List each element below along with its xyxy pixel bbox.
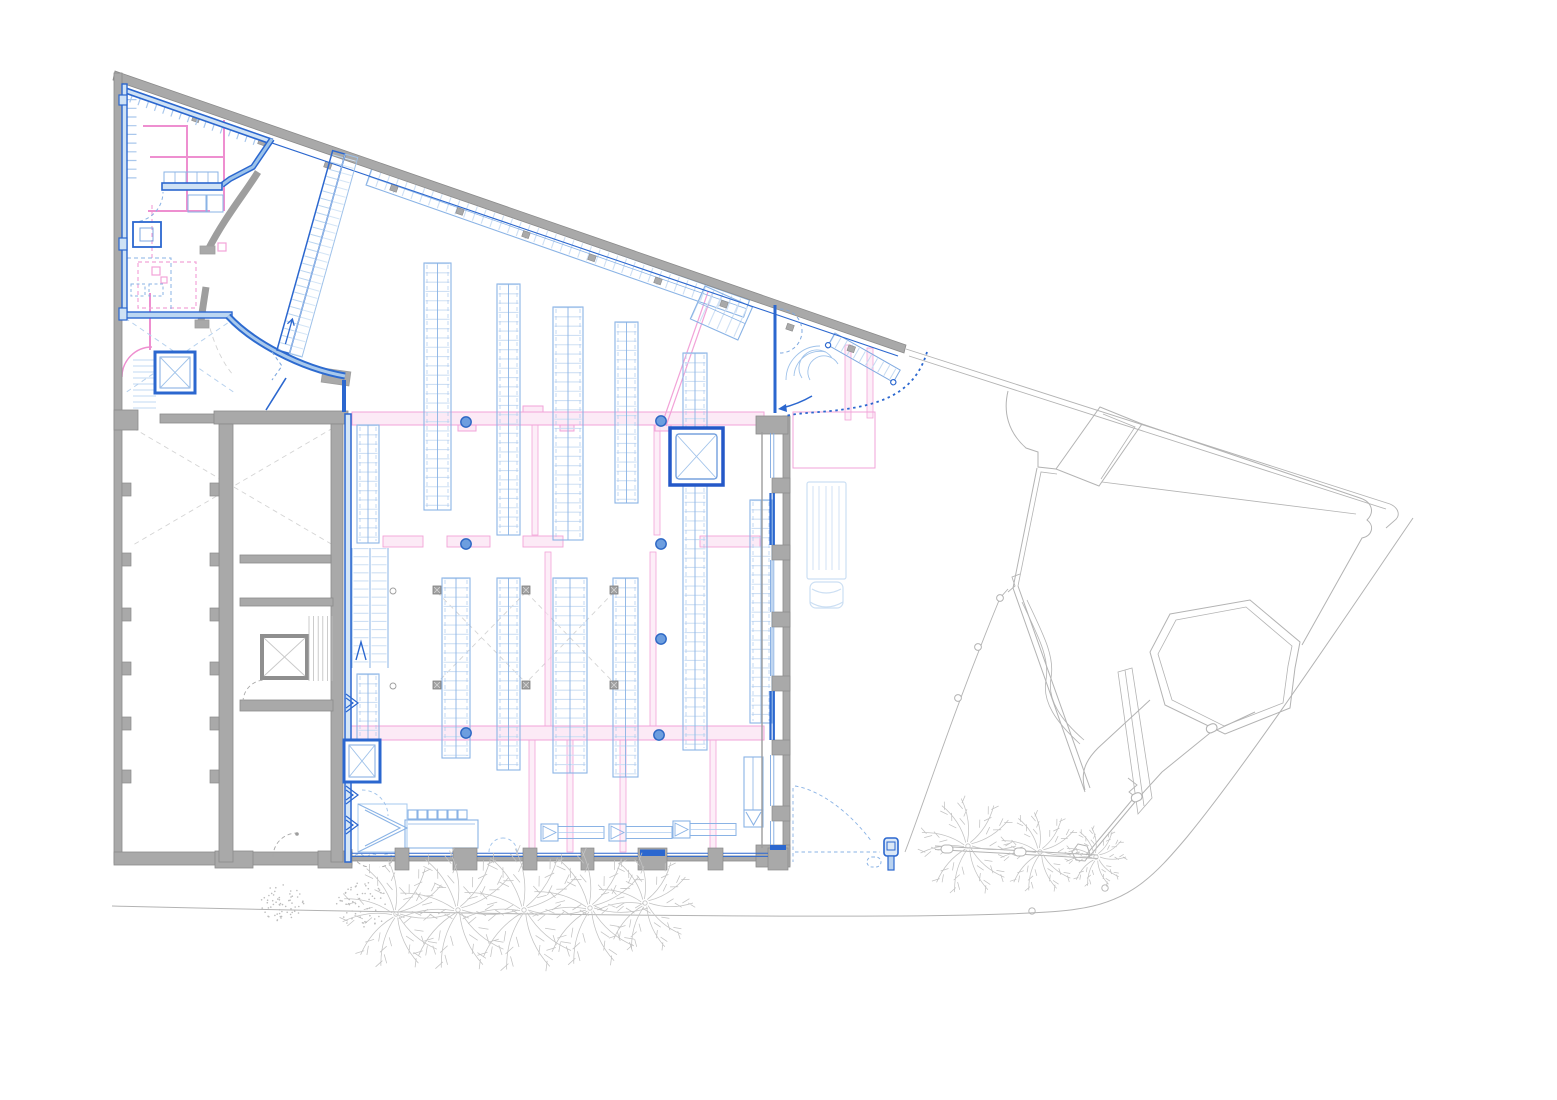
east-wall-pilaster: [772, 676, 790, 691]
shrub-dot: [268, 916, 270, 918]
round-column: [656, 539, 666, 549]
rail-post: [1014, 848, 1026, 856]
shrub-dot: [279, 899, 281, 901]
fence-post: [955, 695, 962, 702]
strip-east-wall: [331, 424, 343, 862]
shrub-dot: [279, 904, 281, 906]
shrub-dot: [355, 903, 357, 905]
square-column: [610, 586, 618, 594]
shrub-dot: [374, 898, 376, 900]
shrub-dot: [264, 911, 266, 913]
shrub-dot: [261, 899, 263, 901]
shrub-dot: [379, 889, 381, 891]
shrub-dot: [289, 899, 291, 901]
west-wall-pilaster: [122, 662, 131, 675]
shrub-dot: [383, 893, 385, 895]
shrub-dot: [270, 906, 272, 908]
shrub-dot: [343, 916, 345, 918]
shrub-dot: [380, 897, 382, 899]
wall-end-cap: [200, 246, 215, 254]
shrub-dot: [276, 913, 278, 915]
shrub-dot: [372, 895, 374, 897]
shrub-dot: [273, 904, 275, 906]
square-column: [522, 681, 530, 689]
overhead-band-segment: [383, 536, 423, 547]
middle-wall-pilaster: [210, 608, 219, 621]
shrub-dot: [279, 913, 281, 915]
shrub-dot: [378, 916, 380, 918]
shrub-dot: [369, 915, 371, 917]
shrub-dot: [374, 918, 376, 920]
middle-wall-pilaster: [210, 717, 219, 730]
wall-pier: [119, 238, 127, 250]
shrub-dot: [370, 893, 372, 895]
overhead-band-segment: [523, 536, 563, 547]
west-wall-pilaster: [122, 770, 131, 783]
east-wall-head-block: [756, 416, 788, 434]
overhead-band-south: [347, 726, 764, 740]
east-wall-pilaster: [772, 478, 790, 493]
shrub-dot: [378, 888, 380, 890]
square-column: [610, 681, 618, 689]
shrub-dot: [356, 883, 358, 885]
west-wall-pilaster: [122, 553, 131, 566]
shrub-dot: [281, 916, 283, 918]
east-wall-pilaster: [772, 740, 790, 755]
shrub-dot: [274, 891, 276, 893]
east-wall-pilaster: [772, 545, 790, 560]
south-wall-pilaster: [768, 848, 788, 870]
shrub-dot: [349, 899, 351, 901]
shrub-dot: [290, 890, 292, 892]
shrub-dot: [381, 920, 383, 922]
counter-top-boxes: [408, 810, 467, 819]
boh-elevator: [155, 352, 195, 393]
overhead-vertical-beam: [532, 425, 538, 535]
shrub-dot: [352, 901, 354, 903]
shrub-dot: [362, 893, 364, 895]
overhead-vertical-beam: [529, 740, 535, 852]
strip-room-wall: [240, 700, 333, 711]
shrub-dot: [346, 912, 348, 914]
square-column: [433, 586, 441, 594]
shrub-dot: [261, 907, 263, 909]
shrub-dot: [368, 888, 370, 890]
round-column: [461, 539, 471, 549]
shrub-dot: [357, 894, 359, 896]
door-hinge: [295, 832, 299, 836]
shrub-dot: [274, 915, 276, 917]
shrub-dot: [347, 888, 349, 890]
shrub-dot: [346, 922, 348, 924]
shrub-dot: [349, 904, 351, 906]
round-column: [656, 416, 666, 426]
wall-end-cap: [195, 320, 209, 328]
overhead-vertical-beam: [654, 425, 660, 535]
shrub-dot: [275, 887, 277, 889]
shrub-dot: [285, 906, 287, 908]
shrub-dot: [355, 913, 357, 915]
south-corner-door: [770, 845, 786, 850]
south-wall-pilaster: [395, 848, 409, 870]
shrub-dot: [291, 917, 293, 919]
shrub-dot: [275, 901, 277, 903]
shrub-dot: [368, 882, 370, 884]
shrub-dot: [364, 883, 366, 885]
shrub-dot: [363, 926, 365, 928]
shelving-rack: [357, 425, 379, 543]
shrub-dot: [286, 912, 288, 914]
shrub-dot: [351, 910, 353, 912]
shrub-dot: [365, 885, 367, 887]
shrub-dot: [269, 887, 271, 889]
fence-post: [997, 595, 1004, 602]
strip-middle-wall: [219, 424, 233, 862]
shrub-dot: [302, 902, 304, 904]
shrub-dot: [267, 902, 269, 904]
boh-lower-wall: [120, 312, 232, 318]
shrub-dot: [358, 906, 360, 908]
round-column: [654, 730, 664, 740]
shrub-dot: [267, 899, 269, 901]
west-wall-pilaster: [122, 717, 131, 730]
round-column: [461, 417, 471, 427]
middle-wall-pilaster: [210, 662, 219, 675]
square-column: [522, 586, 530, 594]
south-wall-pilaster: [708, 848, 723, 870]
middle-wall-pilaster: [210, 770, 219, 783]
wall-pier: [119, 308, 127, 320]
shrub-dot: [264, 897, 266, 899]
strip-room-wall: [240, 598, 333, 606]
shrub-dot: [292, 895, 294, 897]
shrub-dot: [350, 889, 352, 891]
shrub-dot: [360, 911, 362, 913]
shrub-dot: [273, 894, 275, 896]
west-wall-pilaster: [122, 608, 131, 621]
shrub-dot: [364, 893, 366, 895]
shrub-dot: [299, 893, 301, 895]
east-wall-pilaster: [772, 806, 790, 821]
wall-pier: [119, 95, 127, 105]
shrub-dot: [350, 887, 352, 889]
shrub-dot: [291, 902, 293, 904]
middle-wall-pilaster: [210, 483, 219, 496]
round-column: [656, 634, 666, 644]
floor-plan-canvas: [0, 0, 1557, 1100]
east-wall-pilaster: [772, 612, 790, 627]
shrub-dot: [351, 918, 353, 920]
shrub-dot: [298, 906, 300, 908]
shrub-dot: [338, 897, 340, 899]
bollard-cap: [884, 838, 898, 856]
shrub-dot: [380, 892, 382, 894]
west-wall: [114, 73, 122, 863]
shrub-dot: [291, 912, 293, 914]
floor-plan-drawing: [0, 0, 1557, 1100]
shrub-dot: [290, 908, 292, 910]
shrub-dot: [279, 909, 281, 911]
shrub-dot: [359, 898, 361, 900]
west-wall-pilaster: [122, 483, 131, 496]
overhead-vertical-beam: [867, 348, 873, 418]
south-wall-pilaster: [453, 848, 477, 870]
strip-top-wall-a: [160, 414, 216, 423]
shrub-dot: [368, 899, 370, 901]
boh-cross-wall: [162, 183, 222, 190]
shrub-dot: [363, 922, 365, 924]
shrub-dot: [294, 910, 296, 912]
round-column: [461, 728, 471, 738]
south-entry-door: [640, 850, 665, 857]
middle-wall-pilaster: [210, 553, 219, 566]
shrub-dot: [280, 917, 282, 919]
shrub-dot: [290, 914, 292, 916]
shrub-dot: [294, 906, 296, 908]
shrub-dot: [281, 911, 283, 913]
salesfloor-west-lining-wall: [345, 414, 351, 862]
shrub-dot: [366, 908, 368, 910]
strip-room-wall: [240, 555, 331, 563]
shrub-dot: [384, 903, 386, 905]
shrub-dot: [374, 923, 376, 925]
shrub-dot: [268, 895, 270, 897]
strip-corner-block: [114, 410, 138, 430]
band-bump: [523, 406, 543, 412]
south-wall-pilaster: [523, 848, 537, 870]
shrub-dot: [339, 900, 341, 902]
shrub-dot: [271, 893, 273, 895]
shrub-dot: [336, 903, 338, 905]
shrub-dot: [369, 907, 371, 909]
shrub-dot: [345, 892, 347, 894]
shrub-dot: [296, 890, 298, 892]
shrub-dot: [359, 916, 361, 918]
shrub-dot: [277, 919, 279, 921]
strip-top-wall-b: [214, 411, 348, 424]
triangle-room-west-wall: [122, 84, 127, 314]
shrub-dot: [342, 900, 344, 902]
shrub-dot: [297, 896, 299, 898]
shrub-dot: [268, 907, 270, 909]
shrub-dot: [279, 897, 281, 899]
shrub-dot: [277, 898, 279, 900]
bollard-post: [888, 856, 894, 870]
overhead-vertical-beam: [650, 552, 656, 726]
shrub-dot: [298, 912, 300, 914]
shrub-dot: [375, 909, 377, 911]
shrub-dot: [364, 921, 366, 923]
square-column: [433, 681, 441, 689]
shrub-dot: [303, 903, 305, 905]
shrub-dot: [355, 886, 357, 888]
shrub-dot: [282, 904, 284, 906]
rail-post: [941, 845, 953, 853]
shrub-dot: [272, 900, 274, 902]
fence-post: [975, 644, 982, 651]
shrub-dot: [289, 893, 291, 895]
shrub-dot: [282, 884, 284, 886]
shrub-dot: [345, 903, 347, 905]
overhead-vertical-beam: [545, 552, 551, 726]
main-elevator: [670, 428, 723, 485]
overhead-band-segment: [700, 536, 760, 547]
